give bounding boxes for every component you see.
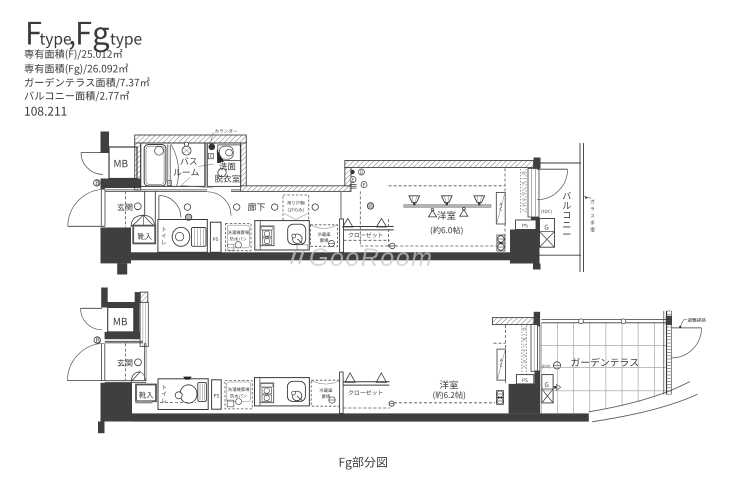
svg-text:GooRoom: GooRoom xyxy=(309,244,433,272)
